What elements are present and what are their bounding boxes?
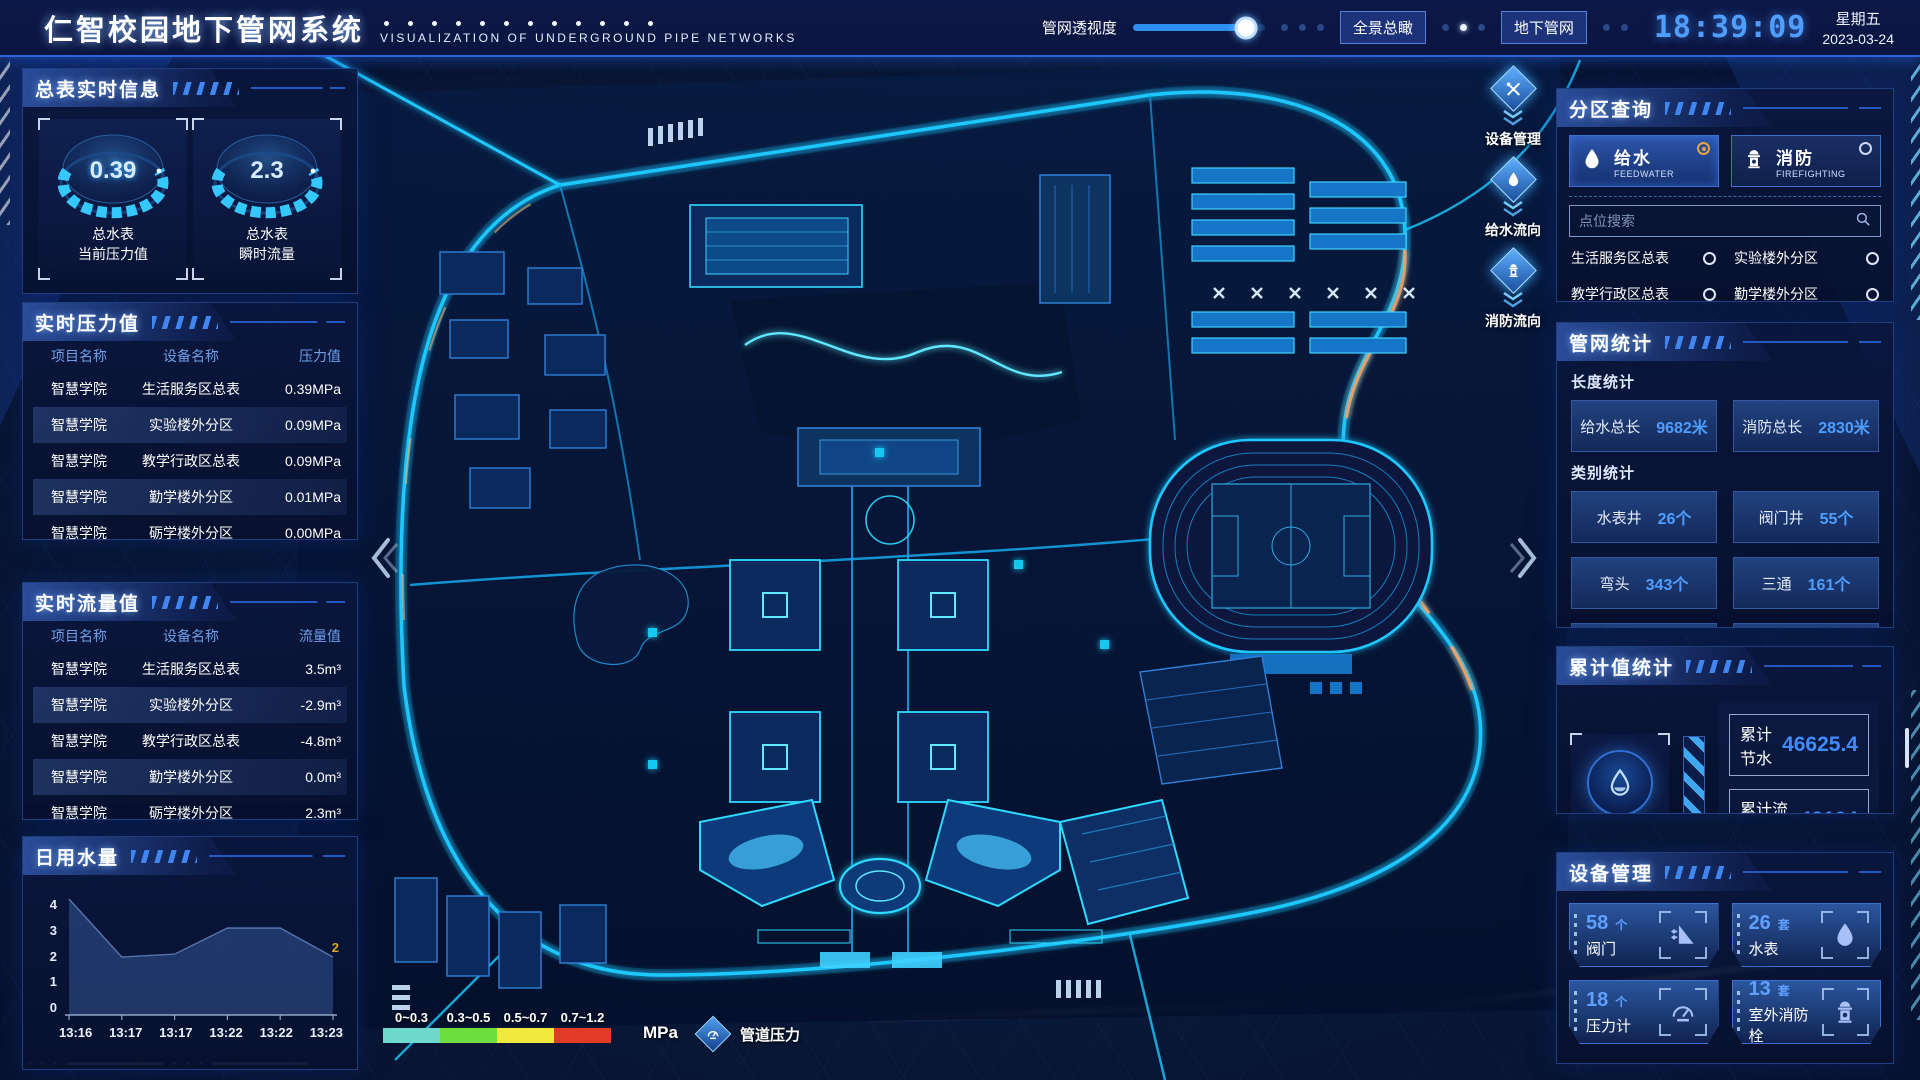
panel-title: 分区查询 bbox=[1569, 95, 1653, 122]
stat-chip: 弯头343个 bbox=[1571, 557, 1717, 609]
page-subtitle: VISUALIZATION OF UNDERGROUND PIPE NETWOR… bbox=[380, 31, 797, 45]
table-row: 智慧学院砺学楼外分区2.3m³ bbox=[33, 795, 347, 820]
tab-label: 给水 bbox=[1614, 144, 1674, 169]
panel-pipe-stats: 管网统计 长度统计 给水总长9682米 消防总长2830米 类别统计 水表井26… bbox=[1556, 322, 1894, 628]
water-drop-icon bbox=[1822, 912, 1868, 958]
stat-chip: 三通161个 bbox=[1733, 557, 1879, 609]
edge-decor-left bbox=[0, 30, 10, 225]
svg-text:0.39: 0.39 bbox=[90, 157, 137, 184]
date: 2023-03-24 bbox=[1822, 31, 1894, 47]
gauge-label-line1: 总水表 bbox=[193, 225, 341, 245]
x-axis-labels: 13:1613:17 13:1713:22 13:2213:23 bbox=[59, 1025, 343, 1040]
panel-title: 管网统计 bbox=[1569, 329, 1653, 356]
gauge-label-line1: 总水表 bbox=[39, 225, 187, 245]
slash-decor bbox=[1665, 866, 1731, 879]
y-axis-labels: 43 21 0 bbox=[35, 897, 57, 1015]
slash-decor bbox=[1665, 336, 1731, 349]
fire-hydrant-icon bbox=[1742, 147, 1766, 176]
panel-title: 设备管理 bbox=[1569, 859, 1653, 886]
zone-list-item[interactable]: 教学行政区总表 bbox=[1571, 276, 1716, 302]
table-header-row: 项目名称设备名称流量值 bbox=[33, 621, 347, 651]
table-row: 智慧学院勤学楼外分区0.01MPa bbox=[33, 479, 347, 515]
stat-chip: 消防总长2830米 bbox=[1733, 400, 1879, 452]
panel-title: 日用水量 bbox=[35, 843, 119, 870]
water-drop-icon bbox=[1587, 750, 1653, 815]
pressure-gauge-icon bbox=[695, 1016, 732, 1053]
date-block: 星期五 2023-03-24 bbox=[1822, 8, 1894, 47]
svg-text:2: 2 bbox=[332, 940, 339, 955]
clock: 18:39:09 bbox=[1654, 10, 1807, 45]
slash-decor bbox=[152, 596, 218, 609]
slash-decor bbox=[173, 82, 239, 95]
gauge-pressure: 0.39 总水表 当前压力值 bbox=[39, 119, 187, 279]
tab-sublabel: FEEDWATER bbox=[1614, 169, 1674, 179]
dot-separator bbox=[1603, 24, 1628, 31]
tool-feedwater-flow[interactable]: 给水流向 bbox=[1485, 153, 1541, 240]
device-card-pressure-gauges[interactable]: 18个 压力计 bbox=[1569, 980, 1719, 1044]
tools-wrench-icon bbox=[1490, 65, 1537, 112]
slash-decor bbox=[1665, 102, 1731, 115]
gauge-dial: 2.3 bbox=[197, 125, 337, 225]
stat-chip-clipped bbox=[1571, 623, 1717, 628]
page-title: 仁智校园地下管网系统 bbox=[44, 7, 364, 49]
panel-realtime-pressure: 实时压力值 项目名称设备名称压力值 智慧学院生活服务区总表0.39MPa 智慧学… bbox=[22, 302, 358, 540]
legend-color-bar bbox=[383, 1028, 611, 1043]
dot-separator bbox=[1281, 24, 1324, 31]
radio-icon[interactable] bbox=[1703, 252, 1716, 265]
edge-decor-right-top bbox=[1911, 60, 1920, 320]
table-row: 智慧学院砺学楼外分区0.00MPa bbox=[33, 515, 347, 540]
gauge-label-line2: 当前压力值 bbox=[39, 245, 187, 265]
stat-chip: 阀门井55个 bbox=[1733, 491, 1879, 543]
stat-chip: 水表井26个 bbox=[1571, 491, 1717, 543]
search-icon[interactable] bbox=[1855, 211, 1871, 232]
panel-device-mgmt: 设备管理 58个 阀门 26套 水表 18个 bbox=[1556, 852, 1894, 1064]
map-prev-arrow[interactable] bbox=[366, 534, 400, 587]
zone-list: 生活服务区总表 实验楼外分区 教学行政区总表 勤学楼外分区 砺学楼外分区 宿舍区… bbox=[1557, 237, 1893, 302]
slider-knob[interactable] bbox=[1235, 16, 1258, 39]
transparency-slider[interactable] bbox=[1133, 24, 1265, 31]
search-input[interactable] bbox=[1579, 213, 1855, 229]
tool-fire-flow[interactable]: 消防流向 bbox=[1485, 244, 1541, 331]
overview-button[interactable]: 全景总瞰 bbox=[1340, 11, 1426, 44]
edge-decor-right-bottom bbox=[1911, 690, 1920, 1020]
title-block: 仁智校园地下管网系统 VISUALIZATION OF UNDERGROUND … bbox=[44, 7, 797, 49]
tab-label: 消防 bbox=[1776, 144, 1846, 169]
slash-decor bbox=[152, 316, 218, 329]
slash-decor bbox=[131, 850, 197, 863]
radio-icon[interactable] bbox=[1703, 288, 1716, 301]
panel-realtime-flow: 实时流量值 项目名称设备名称流量值 智慧学院生活服务区总表3.5m³ 智慧学院实… bbox=[22, 582, 358, 820]
scrollbar-thumb[interactable] bbox=[1905, 728, 1909, 768]
device-card-valves[interactable]: 58个 阀门 bbox=[1569, 903, 1719, 967]
svg-text:2.3: 2.3 bbox=[250, 157, 283, 184]
stat-chip: 给水总长9682米 bbox=[1571, 400, 1717, 452]
tool-label: 设备管理 bbox=[1485, 129, 1541, 149]
fire-hydrant-icon bbox=[1490, 247, 1537, 294]
table-row: 智慧学院实验楼外分区0.09MPa bbox=[33, 407, 347, 443]
tool-label: 消防流向 bbox=[1485, 311, 1541, 331]
tab-firefighting[interactable]: 消防 FIREFIGHTING bbox=[1731, 135, 1881, 187]
valve-icon bbox=[1660, 912, 1706, 958]
zone-list-item[interactable]: 勤学楼外分区 bbox=[1734, 276, 1879, 302]
stripe-divider bbox=[1683, 736, 1705, 815]
stat-chip-clipped bbox=[1733, 623, 1879, 628]
daily-water-chart: 43 21 0 2 13:1613:17 13:1713:22 13:2213:… bbox=[23, 875, 357, 1063]
map-next-arrow[interactable] bbox=[1508, 534, 1542, 587]
table-row: 智慧学院实验楼外分区-2.9m³ bbox=[33, 687, 347, 723]
cumulative-row: 累计节水 46625.4 bbox=[1729, 714, 1869, 776]
water-drop-icon bbox=[1490, 156, 1537, 203]
table-row: 智慧学院生活服务区总表3.5m³ bbox=[33, 651, 347, 687]
panel-master-info: 总表实时信息 0.39 总水表 当前压力值 bbox=[22, 68, 358, 294]
pressure-gauge-icon bbox=[1660, 989, 1706, 1035]
cumulative-row: 累计流量 42104 bbox=[1729, 789, 1869, 814]
zone-list-item[interactable]: 实验楼外分区 bbox=[1734, 240, 1879, 276]
tool-device-mgmt[interactable]: 设备管理 bbox=[1485, 62, 1541, 149]
fire-hydrant-icon bbox=[1823, 989, 1868, 1035]
dot-separator bbox=[1442, 24, 1485, 31]
panel-cumulative: 累计值统计 累计节水 46625.4 累计流量 42104 bbox=[1556, 646, 1894, 814]
slider-fill bbox=[1133, 24, 1247, 31]
tool-label: 给水流向 bbox=[1485, 220, 1541, 240]
table-row: 智慧学院勤学楼外分区0.0m³ bbox=[33, 759, 347, 795]
panel-zone-query: 分区查询 给水 FEEDWATER 消防 FIREFIGHTING bbox=[1556, 88, 1894, 302]
legend-label: 管道压力 bbox=[740, 1024, 800, 1045]
panel-daily-water: 日用水量 43 21 0 2 13:1613:17 13:1713:22 13:… bbox=[22, 836, 358, 1070]
device-card-water-meters[interactable]: 26套 水表 bbox=[1732, 903, 1882, 967]
gauge-dial: 0.39 bbox=[43, 125, 183, 225]
tab-radio-selected[interactable] bbox=[1697, 142, 1710, 155]
gauge-label-line2: 瞬时流量 bbox=[193, 245, 341, 265]
device-card-hydrants[interactable]: 13套 室外消防栓 bbox=[1732, 980, 1882, 1044]
header-bar: 仁智校园地下管网系统 VISUALIZATION OF UNDERGROUND … bbox=[0, 0, 1920, 57]
title-dots-decor bbox=[380, 21, 797, 26]
dashed-divider bbox=[1569, 196, 1881, 197]
category-stats-label: 类别统计 bbox=[1557, 452, 1893, 491]
table-row: 智慧学院生活服务区总表0.39MPa bbox=[33, 371, 347, 407]
panel-title: 总表实时信息 bbox=[35, 75, 161, 102]
transparency-label: 管网透视度 bbox=[1042, 17, 1117, 38]
radio-icon[interactable] bbox=[1866, 288, 1879, 301]
legend-unit: MPa bbox=[643, 1023, 678, 1043]
underground-button[interactable]: 地下管网 bbox=[1501, 11, 1587, 44]
legend-range-labels: 0~0.30.3~0.5 0.5~0.70.7~1.2 bbox=[383, 1010, 611, 1025]
water-drop-icon bbox=[1580, 147, 1604, 176]
tab-feedwater[interactable]: 给水 FEEDWATER bbox=[1569, 135, 1719, 187]
length-stats-label: 长度统计 bbox=[1557, 361, 1893, 400]
table-row: 智慧学院教学行政区总表-4.8m³ bbox=[33, 723, 347, 759]
flow-table: 项目名称设备名称流量值 智慧学院生活服务区总表3.5m³ 智慧学院实验楼外分区-… bbox=[23, 621, 357, 820]
tab-radio[interactable] bbox=[1859, 142, 1872, 155]
pressure-legend: 0~0.30.3~0.5 0.5~0.70.7~1.2 MPa 管道压力 bbox=[383, 1010, 800, 1043]
pressure-table: 项目名称设备名称压力值 智慧学院生活服务区总表0.39MPa 智慧学院实验楼外分… bbox=[23, 341, 357, 540]
panel-title: 实时压力值 bbox=[35, 309, 140, 336]
zone-list-item[interactable]: 生活服务区总表 bbox=[1571, 240, 1716, 276]
panel-title: 实时流量值 bbox=[35, 589, 140, 616]
gauge-flow: 2.3 总水表 瞬时流量 bbox=[193, 119, 341, 279]
search-box bbox=[1569, 205, 1881, 237]
table-row: 智慧学院教学行政区总表0.09MPa bbox=[33, 443, 347, 479]
panel-title: 累计值统计 bbox=[1569, 653, 1674, 680]
radio-icon[interactable] bbox=[1866, 252, 1879, 265]
table-header-row: 项目名称设备名称压力值 bbox=[33, 341, 347, 371]
cumulative-icon-box bbox=[1571, 734, 1669, 815]
tab-sublabel: FIREFIGHTING bbox=[1776, 169, 1846, 179]
weekday: 星期五 bbox=[1836, 8, 1881, 29]
slash-decor bbox=[1686, 660, 1752, 673]
area-chart-svg: 2 bbox=[65, 891, 343, 1023]
